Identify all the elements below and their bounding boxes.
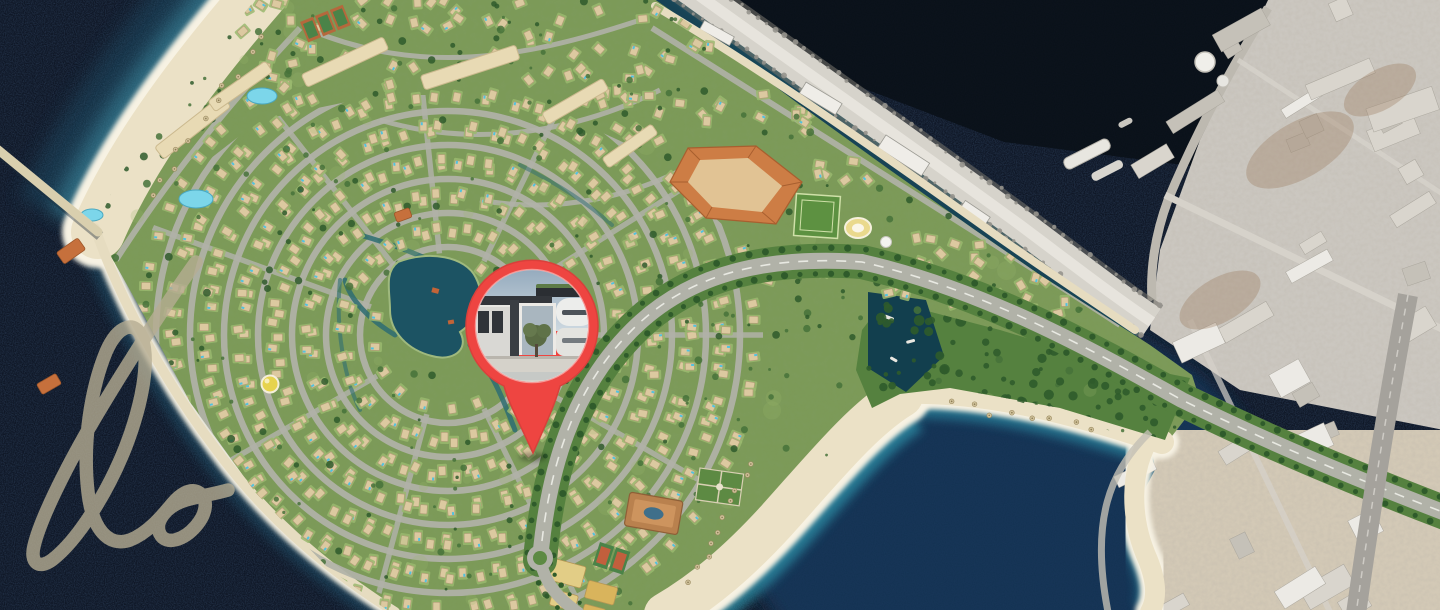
amphitheatre: [845, 218, 871, 238]
formal-garden: [696, 468, 744, 506]
storage-tank: [1195, 52, 1215, 72]
storage-tank: [1217, 75, 1229, 87]
masterplan-map: lo: [0, 0, 1440, 610]
white-dome: [881, 237, 892, 248]
golden-dome: [262, 376, 279, 393]
sports-field: [794, 194, 841, 239]
